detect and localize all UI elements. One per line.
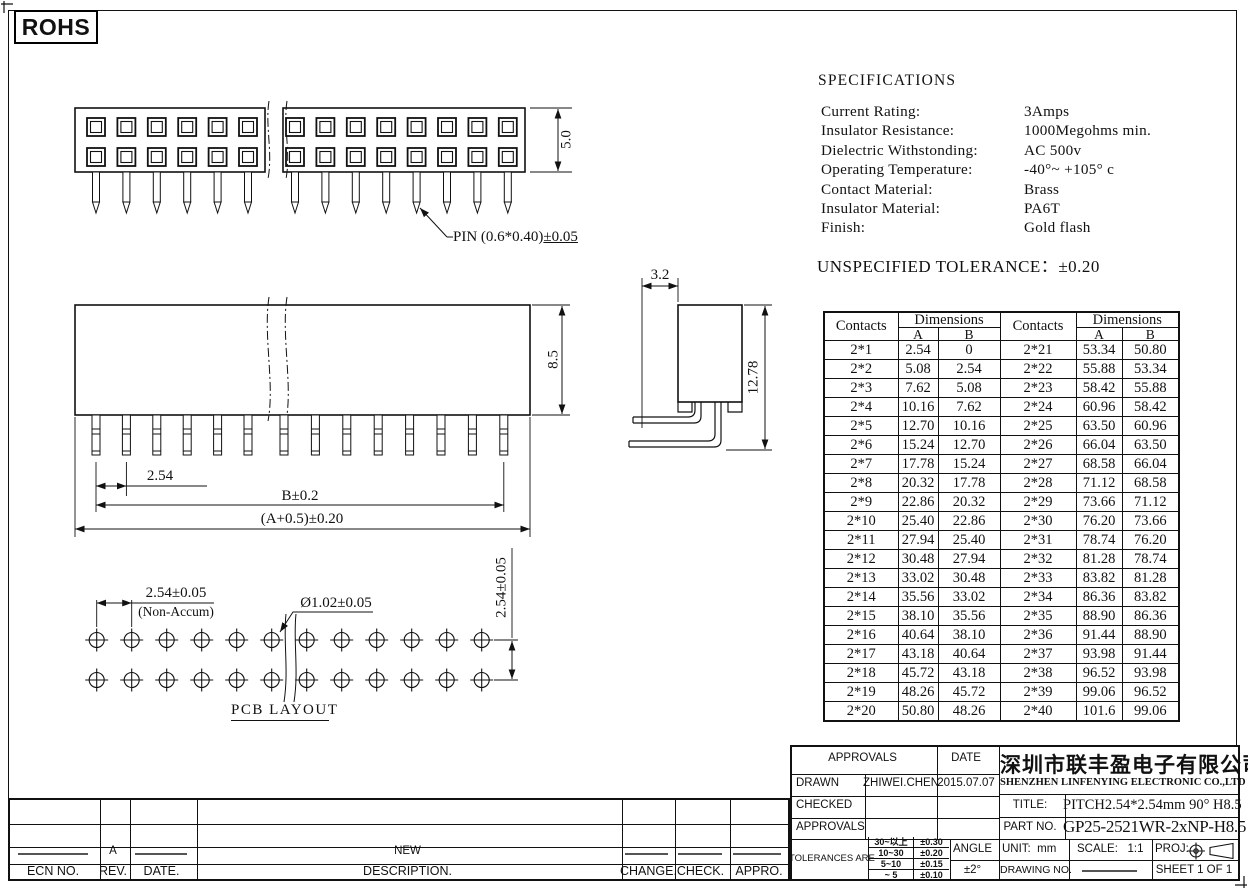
datasheet-page: ROHS [0, 0, 1248, 889]
table-cell: 15.24 [898, 436, 938, 455]
scale-value: 1:1 [1128, 843, 1144, 855]
table-cell: 7.62 [938, 398, 1000, 417]
table-cell: 2*39 [1000, 683, 1076, 702]
side-height-dim: 12.78 [746, 348, 763, 408]
table-row: 2*922.8620.322*2973.6671.12 [824, 493, 1179, 512]
spec-item: Dielectric Withstonding:AC 500v [821, 141, 1231, 160]
table-row: 2*2050.8048.262*40101.699.06 [824, 702, 1179, 722]
table-cell: 60.96 [1076, 398, 1122, 417]
spec-item-label: Insulator Material: [821, 199, 1024, 218]
table-cell: 2*40 [1000, 702, 1076, 722]
part-no-label: PART NO. [997, 821, 1063, 833]
revision-header: CHANGE. [620, 864, 673, 878]
table-cell: 2*21 [1000, 341, 1076, 360]
table-cell: 86.36 [1122, 607, 1179, 626]
table-cell: 2*1 [824, 341, 898, 360]
spec-item-value: Brass [1024, 180, 1059, 199]
dimension-table: Contacts Dimensions Contacts Dimensions … [823, 311, 1180, 722]
col-a-header: A [1076, 328, 1122, 341]
table-cell: 2*12 [824, 550, 898, 569]
tolerance-range: 10~30 [869, 848, 914, 859]
table-cell: 78.74 [1122, 550, 1179, 569]
table-row: 2*1127.9425.402*3178.7476.20 [824, 531, 1179, 550]
checked-label: CHECKED [796, 799, 852, 811]
table-cell: 35.56 [898, 588, 938, 607]
revision-header: APPRO. [728, 864, 790, 878]
dimensions-header: Dimensions [898, 312, 1000, 328]
table-cell: 50.80 [898, 702, 938, 722]
table-cell: 68.58 [1076, 455, 1122, 474]
drawn-label: DRAWN [796, 777, 839, 789]
revision-header: ECN NO. [8, 864, 98, 878]
spec-item-label: Finish: [821, 218, 1024, 237]
spec-item-value: Gold flash [1024, 218, 1091, 237]
table-cell: 2*34 [1000, 588, 1076, 607]
tolerance-value: ±0.15 [914, 859, 949, 870]
spec-item-label: Insulator Resistance: [821, 121, 1024, 140]
title-label: TITLE: [997, 799, 1063, 811]
spec-item-value: AC 500v [1024, 141, 1081, 160]
table-cell: 2*16 [824, 626, 898, 645]
table-cell: 45.72 [938, 683, 1000, 702]
table-row: 2*25.082.542*2255.8853.34 [824, 360, 1179, 379]
table-cell: 73.66 [1076, 493, 1122, 512]
unit-label: UNIT: [1002, 843, 1031, 855]
table-cell: 78.74 [1076, 531, 1122, 550]
table-cell: 12.70 [938, 436, 1000, 455]
spec-item-value: 3Amps [1024, 102, 1069, 121]
spec-item: Insulator Material:PA6T [821, 199, 1231, 218]
table-cell: 0 [938, 341, 1000, 360]
front-view-pins [92, 415, 508, 455]
angle-label: ANGLE [948, 843, 997, 855]
tolerance-value: ±0.30 [914, 837, 949, 848]
spec-item-label: Operating Temperature: [821, 160, 1024, 179]
table-cell: 2*36 [1000, 626, 1076, 645]
revision-value: A [98, 845, 128, 857]
col-a-header: A [898, 328, 938, 341]
projection-label: PROJ: [1155, 843, 1189, 855]
table-cell: 91.44 [1076, 626, 1122, 645]
table-cell: 81.28 [1122, 569, 1179, 588]
table-cell: 86.36 [1076, 588, 1122, 607]
table-cell: 2*20 [824, 702, 898, 722]
table-cell: 2*18 [824, 664, 898, 683]
revision-header: DATE. [128, 864, 195, 878]
specifications-title: SPECIFICATIONS [818, 72, 956, 90]
placeholder-dash-line [678, 853, 722, 855]
revision-header: REV. [98, 864, 128, 878]
table-cell: 101.6 [1076, 702, 1122, 722]
angle-tolerance: ±2° [948, 864, 997, 876]
table-cell: 96.52 [1076, 664, 1122, 683]
pcb-row-pitch-dim: 2.54±0.05 [494, 540, 511, 636]
table-cell: 2*6 [824, 436, 898, 455]
table-cell: 2*38 [1000, 664, 1076, 683]
spec-item-value: 1000Megohms min. [1024, 121, 1151, 140]
tolerance-note-label: UNSPECIFIED TOLERANCE： [817, 257, 1058, 276]
table-cell: 2*29 [1000, 493, 1076, 512]
table-cell: 58.42 [1122, 398, 1179, 417]
drawing-no-label: DRAWING NO. [1000, 864, 1072, 876]
top-view-pins [93, 172, 512, 213]
table-cell: 25.40 [938, 531, 1000, 550]
table-cell: 2*17 [824, 645, 898, 664]
drawn-date: 2015.07.07 [935, 777, 997, 789]
drawing-no-placeholder-dash [1082, 870, 1137, 872]
tolerance-value: ±0.10 [914, 870, 949, 881]
table-cell: 2*2 [824, 360, 898, 379]
table-row: 2*1845.7243.182*3896.5293.98 [824, 664, 1179, 683]
spec-item-label: Current Rating: [821, 102, 1024, 121]
table-cell: 83.82 [1076, 569, 1122, 588]
placeholder-dash-line [18, 853, 88, 855]
specifications-list: Current Rating:3AmpsInsulator Resistance… [821, 102, 1231, 238]
table-cell: 96.52 [1122, 683, 1179, 702]
col-b-header: B [1122, 328, 1179, 341]
table-cell: 2*27 [1000, 455, 1076, 474]
table-cell: 2*24 [1000, 398, 1076, 417]
table-cell: 93.98 [1076, 645, 1122, 664]
tolerance-range: ~ 5 [869, 870, 914, 881]
drawn-name: ZHIWEI.CHEN [863, 777, 935, 789]
unspecified-tolerance-note: UNSPECIFIED TOLERANCE：±0.20 [817, 252, 1100, 277]
spec-item-label: Dielectric Withstonding: [821, 141, 1024, 160]
table-cell: 25.40 [898, 512, 938, 531]
tolerance-range: 30~以上 [869, 837, 914, 848]
pcb-break-lines [284, 614, 296, 702]
col-b-header: B [938, 328, 1000, 341]
table-cell: 88.90 [1122, 626, 1179, 645]
unit-cell: UNIT: mm [1002, 843, 1056, 855]
table-cell: 43.18 [898, 645, 938, 664]
table-cell: 2*35 [1000, 607, 1076, 626]
title-value: PITCH2.54*2.54mm 90° H8.5 [1063, 797, 1238, 814]
table-row: 2*615.2412.702*2666.0463.50 [824, 436, 1179, 455]
placeholder-dash-line [733, 853, 781, 855]
pcb-holes [85, 629, 493, 692]
approvals-label: APPROVALS [796, 821, 865, 833]
table-cell: 60.96 [1122, 417, 1179, 436]
table-row: 2*12.5402*2153.3450.80 [824, 341, 1179, 360]
placeholder-dash-line [625, 853, 668, 855]
table-cell: 10.16 [938, 417, 1000, 436]
table-cell: 73.66 [1122, 512, 1179, 531]
table-cell: 20.32 [938, 493, 1000, 512]
table-cell: 2*28 [1000, 474, 1076, 493]
table-row: 2*512.7010.162*2563.5060.96 [824, 417, 1179, 436]
table-cell: 2*25 [1000, 417, 1076, 436]
table-cell: 68.58 [1122, 474, 1179, 493]
contacts-header: Contacts [824, 312, 898, 341]
table-cell: 48.26 [898, 683, 938, 702]
spec-item-label: Contact Material: [821, 180, 1024, 199]
table-cell: 2*13 [824, 569, 898, 588]
table-cell: 45.72 [898, 664, 938, 683]
table-cell: 30.48 [938, 569, 1000, 588]
projection-cell: PROJ: [1155, 843, 1189, 855]
table-cell: 2*23 [1000, 379, 1076, 398]
table-cell: 10.16 [898, 398, 938, 417]
front-pitch-dim: 2.54 [132, 468, 188, 485]
table-cell: 22.86 [898, 493, 938, 512]
dimensions-header: Dimensions [1076, 312, 1179, 328]
table-cell: 99.06 [1076, 683, 1122, 702]
table-row: 2*1640.6438.102*3691.4488.90 [824, 626, 1179, 645]
table-cell: 91.44 [1122, 645, 1179, 664]
table-cell: 2*26 [1000, 436, 1076, 455]
table-cell: 43.18 [938, 664, 1000, 683]
projection-symbol-icon [1186, 842, 1238, 860]
spec-item: Insulator Resistance:1000Megohms min. [821, 121, 1231, 140]
front-height-dim: 8.5 [546, 345, 563, 375]
table-cell: 17.78 [938, 474, 1000, 493]
spec-item-value: PA6T [1024, 199, 1060, 218]
table-cell: 2.54 [938, 360, 1000, 379]
table-cell: 2*7 [824, 455, 898, 474]
front-span-b-dim: B±0.2 [250, 488, 350, 505]
table-cell: 27.94 [938, 550, 1000, 569]
table-cell: 35.56 [938, 607, 1000, 626]
side-view-details [629, 402, 742, 447]
table-cell: 2*15 [824, 607, 898, 626]
table-cell: 15.24 [938, 455, 1000, 474]
tolerance-grid: 30~以上±0.3010~30±0.205~10±0.15~ 5±0.10 [868, 837, 948, 881]
table-cell: 2*10 [824, 512, 898, 531]
table-cell: 2*22 [1000, 360, 1076, 379]
table-cell: 99.06 [1122, 702, 1179, 722]
table-cell: 27.94 [898, 531, 938, 550]
table-cell: 7.62 [898, 379, 938, 398]
table-row: 2*1948.2645.722*3999.0696.52 [824, 683, 1179, 702]
pcb-hole-dim: Ø1.02±0.05 [290, 595, 382, 612]
table-row: 2*1025.4022.862*3076.2073.66 [824, 512, 1179, 531]
table-cell: 55.88 [1122, 379, 1179, 398]
table-cell: 66.04 [1076, 436, 1122, 455]
pcb-pitch-note: (Non-Accum) [126, 604, 226, 620]
table-cell: 2*33 [1000, 569, 1076, 588]
pin-dimension-main: PIN (0.6*0.40) [453, 229, 543, 245]
contacts-header: Contacts [1000, 312, 1076, 341]
table-cell: 2*9 [824, 493, 898, 512]
revision-header: CHECK. [673, 864, 728, 878]
table-cell: 2*4 [824, 398, 898, 417]
company-name-cn: 深圳市联丰盈电子有限公司 [1000, 749, 1237, 779]
spec-item: Operating Temperature:-40°~ +105° c [821, 160, 1231, 179]
table-cell: 88.90 [1076, 607, 1122, 626]
table-row: 2*1333.0230.482*3383.8281.28 [824, 569, 1179, 588]
pin-dimension-label: PIN (0.6*0.40)±0.05 [453, 229, 578, 246]
table-cell: 76.20 [1122, 531, 1179, 550]
table-cell: 2*14 [824, 588, 898, 607]
spec-item: Current Rating:3Amps [821, 102, 1231, 121]
revision-header: DESCRIPTION. [195, 864, 620, 878]
table-cell: 17.78 [898, 455, 938, 474]
table-cell: 40.64 [938, 645, 1000, 664]
pin-dimension-tolerance: ±0.05 [543, 229, 577, 245]
table-cell: 48.26 [938, 702, 1000, 722]
table-row: 2*717.7815.242*2768.5866.04 [824, 455, 1179, 474]
date-header: DATE [935, 752, 997, 764]
sheet-label: SHEET 1 OF 1 [1150, 864, 1238, 876]
revision-description: NEW [195, 845, 620, 857]
spec-item: Contact Material:Brass [821, 180, 1231, 199]
table-cell: 81.28 [1076, 550, 1122, 569]
table-cell: 71.12 [1122, 493, 1179, 512]
table-cell: 50.80 [1122, 341, 1179, 360]
table-cell: 93.98 [1122, 664, 1179, 683]
table-cell: 53.34 [1122, 360, 1179, 379]
table-cell: 63.50 [1076, 417, 1122, 436]
spec-item: Finish:Gold flash [821, 218, 1231, 237]
table-row: 2*37.625.082*2358.4255.88 [824, 379, 1179, 398]
table-cell: 5.08 [938, 379, 1000, 398]
table-cell: 2*30 [1000, 512, 1076, 531]
table-row: 2*1743.1840.642*3793.9891.44 [824, 645, 1179, 664]
table-cell: 2.54 [898, 341, 938, 360]
table-cell: 71.12 [1076, 474, 1122, 493]
table-cell: 53.34 [1076, 341, 1122, 360]
table-cell: 2*31 [1000, 531, 1076, 550]
table-cell: 2*37 [1000, 645, 1076, 664]
tolerance-value: ±0.20 [914, 848, 949, 859]
table-row: 2*1538.1035.562*3588.9086.36 [824, 607, 1179, 626]
table-cell: 12.70 [898, 417, 938, 436]
placeholder-dash-line [135, 853, 187, 855]
pcb-layout-caption: PCB LAYOUT [231, 702, 329, 721]
spec-item-value: -40°~ +105° c [1024, 160, 1114, 179]
table-cell: 33.02 [938, 588, 1000, 607]
table-row: 2*820.3217.782*2871.1268.58 [824, 474, 1179, 493]
table-cell: 2*5 [824, 417, 898, 436]
table-cell: 30.48 [898, 550, 938, 569]
table-cell: 63.50 [1122, 436, 1179, 455]
pcb-pitch-dim: 2.54±0.05 [128, 585, 224, 602]
unit-value: mm [1037, 843, 1056, 855]
table-cell: 40.64 [898, 626, 938, 645]
table-cell: 2*8 [824, 474, 898, 493]
approvals-header: APPROVALS [790, 752, 935, 764]
scale-label: SCALE: [1077, 843, 1118, 855]
side-width-dim: 3.2 [642, 267, 678, 284]
table-cell: 66.04 [1122, 455, 1179, 474]
table-cell: 2*11 [824, 531, 898, 550]
socket-grid [87, 118, 517, 166]
table-cell: 83.82 [1122, 588, 1179, 607]
table-cell: 20.32 [898, 474, 938, 493]
table-cell: 2*3 [824, 379, 898, 398]
company-name-en: SHENZHEN LINFENYING ELECTRONIC CO.,LTD [1000, 777, 1237, 788]
table-row: 2*1435.5633.022*3486.3683.82 [824, 588, 1179, 607]
table-row: 2*410.167.622*2460.9658.42 [824, 398, 1179, 417]
table-cell: 33.02 [898, 569, 938, 588]
front-span-a-dim: (A+0.5)±0.20 [237, 511, 367, 528]
scale-cell: SCALE: 1:1 [1077, 843, 1144, 855]
table-row: 2*1230.4827.942*3281.2878.74 [824, 550, 1179, 569]
top-height-dim: 5.0 [559, 125, 576, 155]
table-cell: 5.08 [898, 360, 938, 379]
table-cell: 22.86 [938, 512, 1000, 531]
table-cell: 76.20 [1076, 512, 1122, 531]
table-cell: 2*19 [824, 683, 898, 702]
table-cell: 38.10 [898, 607, 938, 626]
table-cell: 55.88 [1076, 360, 1122, 379]
part-no-value: GP25-2521WR-2xNP-H8.5 [1063, 817, 1238, 837]
tolerance-note-value: ±0.20 [1058, 257, 1100, 276]
table-cell: 58.42 [1076, 379, 1122, 398]
table-cell: 2*32 [1000, 550, 1076, 569]
tolerance-range: 5~10 [869, 859, 914, 870]
tolerances-label: TOLERANCES ARE [789, 853, 868, 864]
table-cell: 38.10 [938, 626, 1000, 645]
